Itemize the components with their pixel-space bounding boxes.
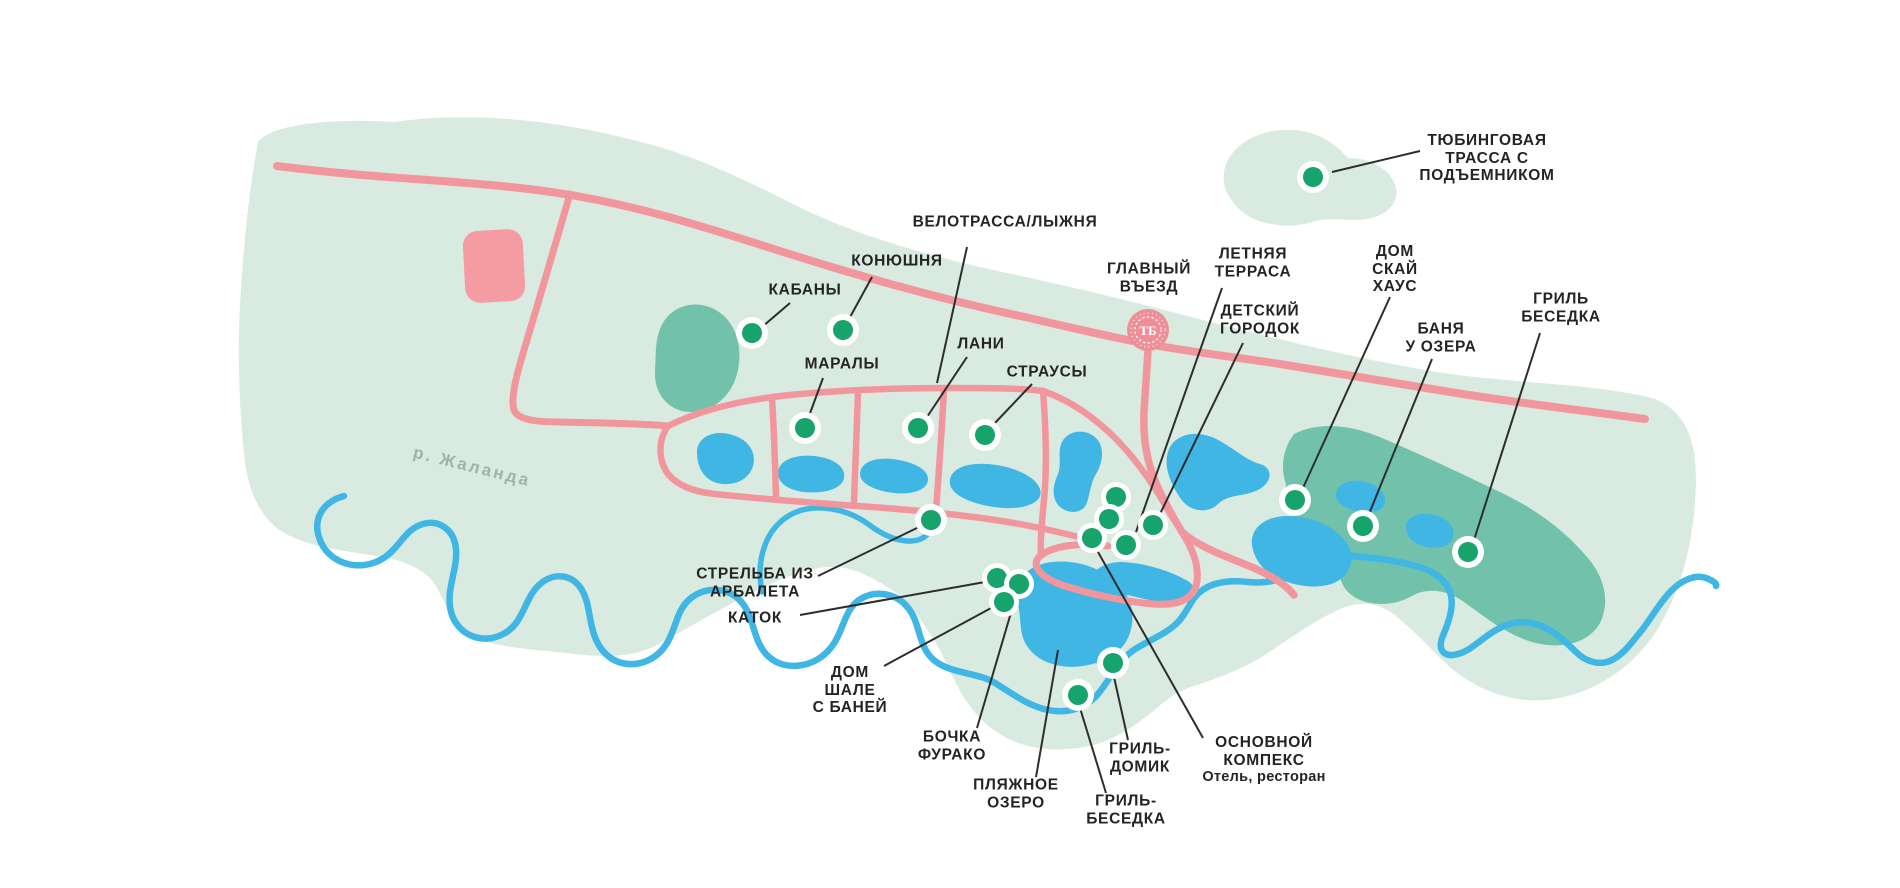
land-shape: [239, 117, 1696, 749]
building-square: [462, 228, 526, 303]
label-line: ГОРОДОК: [1220, 320, 1300, 338]
pen-fence-2: [854, 392, 858, 501]
label-plyazhnoe-ozero: ПЛЯЖНОЕ ОЗЕРО: [973, 777, 1059, 812]
label-line: ШАЛЕ: [813, 681, 888, 699]
label-velotrassa: ВЕЛОТРАССА/ЛЫЖНЯ: [913, 213, 1098, 231]
label-line: КОНЮШНЯ: [851, 252, 943, 270]
marker-strausy: [969, 419, 1001, 451]
label-konyushnya: КОНЮШНЯ: [851, 252, 943, 270]
label-line: СКАЙ: [1372, 260, 1418, 278]
label-glavny-vezd: ГЛАВНЫЙ ВЪЕЗД: [1107, 261, 1191, 296]
label-tubing: ТЮБИНГОВАЯ ТРАССА С ПОДЪЕМНИКОМ: [1419, 132, 1554, 185]
label-line: ДОМ: [1372, 243, 1418, 261]
label-kabany: КАБАНЫ: [769, 281, 842, 299]
marker-strelba: [915, 504, 947, 536]
marker-letnyaya: [1111, 530, 1141, 560]
label-line: ГЛАВНЫЙ: [1107, 261, 1191, 279]
label-dom-skai-haus: ДОМ СКАЙ ХАУС: [1372, 243, 1418, 296]
marker-lani: [902, 412, 934, 444]
label-line: ОЗЕРО: [973, 794, 1059, 812]
label-line: БЕСЕДКА: [1521, 308, 1601, 326]
label-gril-besedka-bottom: ГРИЛЬ- БЕСЕДКА: [1086, 793, 1166, 828]
entrance-logo: ТБ: [1127, 309, 1169, 351]
label-line: ВЪЕЗД: [1107, 278, 1191, 296]
label-line: ДОМ: [813, 664, 888, 682]
label-maraly: МАРАЛЫ: [805, 355, 880, 373]
marker-osnovnoy: [1077, 523, 1107, 553]
marker-tubing: [1297, 161, 1329, 193]
label-dom-shale: ДОМ ШАЛЕ С БАНЕЙ: [813, 664, 888, 717]
marker-gril-domik: [1097, 647, 1129, 679]
label-line: ЛЕТНЯЯ: [1215, 246, 1292, 264]
label-line: ГРИЛЬ-: [1086, 793, 1166, 811]
label-line: ПЛЯЖНОЕ: [973, 777, 1059, 795]
label-banya-u-ozera: БАНЯ У ОЗЕРА: [1405, 321, 1476, 356]
marker-maraly: [789, 412, 821, 444]
label-line: ПОДЪЕМНИКОМ: [1419, 167, 1554, 185]
label-line: КАТОК: [728, 609, 782, 627]
label-osnovnoy-kompleks: ОСНОВНОЙ КОМПЕКС Отель, ресторан: [1202, 734, 1325, 787]
label-bochka-furako: БОЧКА ФУРАКО: [918, 729, 986, 764]
label-strelba: СТРЕЛЬБА ИЗ АРБАЛЕТА: [696, 566, 814, 601]
label-line: КОМПЕКС: [1202, 751, 1325, 769]
label-line: ТРАССА С: [1419, 149, 1554, 167]
label-line: ДОМИК: [1109, 758, 1171, 776]
label-line: ДЕТСКИЙ: [1220, 303, 1300, 321]
marker-dom-shale: [989, 587, 1019, 617]
label-line: БЕСЕДКА: [1086, 810, 1166, 828]
entrance-monogram: ТБ: [1139, 323, 1156, 338]
label-line: СТРЕЛЬБА ИЗ: [696, 566, 814, 584]
label-line: БОЧКА: [918, 729, 986, 747]
marker-gril-besedka-right: [1452, 536, 1484, 568]
label-line: КАБАНЫ: [769, 281, 842, 299]
label-gril-domik: ГРИЛЬ- ДОМИК: [1109, 741, 1171, 776]
label-line: С БАНЕЙ: [813, 699, 888, 717]
label-line: ГРИЛЬ-: [1109, 741, 1171, 759]
label-line: ОСНОВНОЙ: [1202, 734, 1325, 752]
marker-konyushnya: [827, 314, 859, 346]
label-gril-besedka-right: ГРИЛЬ БЕСЕДКА: [1521, 291, 1601, 326]
marker-dom-skai: [1279, 484, 1311, 516]
pen-fence-1: [772, 397, 776, 496]
label-line: ТЕРРАСА: [1215, 263, 1292, 281]
label-line: МАРАЛЫ: [805, 355, 880, 373]
label-letnyaya-terrasa: ЛЕТНЯЯ ТЕРРАСА: [1215, 246, 1292, 281]
label-line: ВЕЛОТРАССА/ЛЫЖНЯ: [913, 213, 1098, 231]
label-line: СТРАУСЫ: [1007, 363, 1088, 381]
label-line: ЛАНИ: [957, 335, 1004, 353]
label-line: ФУРАКО: [918, 746, 986, 764]
label-line: У ОЗЕРА: [1405, 338, 1476, 356]
label-katok: КАТОК: [728, 609, 782, 627]
resort-map: ТБ: [0, 0, 1900, 888]
label-strausy: СТРАУСЫ: [1007, 363, 1088, 381]
label-line: БАНЯ: [1405, 321, 1476, 339]
label-detsky-gorodok: ДЕТСКИЙ ГОРОДОК: [1220, 303, 1300, 338]
marker-kabany: [736, 317, 768, 349]
marker-banya: [1347, 510, 1379, 542]
label-lani: ЛАНИ: [957, 335, 1004, 353]
label-line: ТЮБИНГОВАЯ: [1419, 132, 1554, 150]
marker-detsky: [1138, 510, 1168, 540]
label-line: ГРИЛЬ: [1521, 291, 1601, 309]
label-subline: Отель, ресторан: [1202, 769, 1325, 787]
label-line: ХАУС: [1372, 278, 1418, 296]
marker-gril-besedka-bottom: [1062, 679, 1094, 711]
label-line: АРБАЛЕТА: [696, 583, 814, 601]
